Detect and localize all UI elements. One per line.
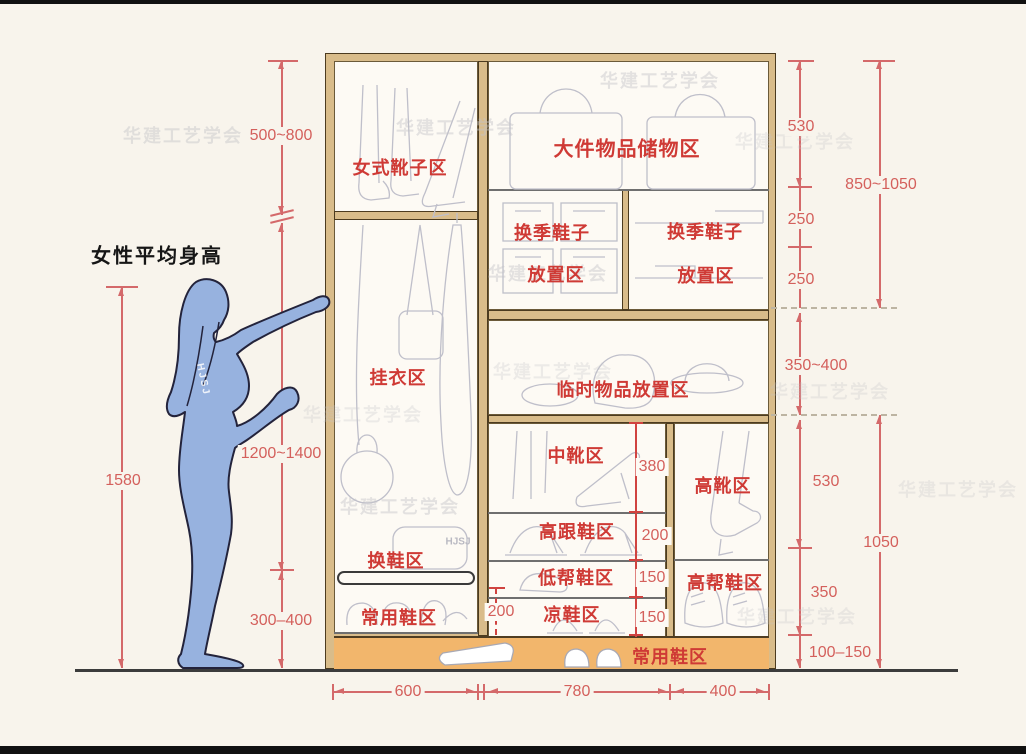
dim-arrow	[756, 688, 764, 694]
dim-label-seasonal-a: 250	[785, 211, 818, 229]
dim-arrow	[876, 416, 882, 424]
dim-label-seasonal-b: 250	[785, 271, 818, 289]
zone-label-women-boots: 女式靴子区	[353, 154, 448, 180]
dim-label-depth: 200	[485, 603, 518, 621]
watermark: 华建工艺学会	[123, 122, 243, 148]
zone-label-mid-boots: 中靴区	[548, 442, 605, 468]
dim-arrow	[676, 688, 684, 694]
dim-arrow	[278, 224, 284, 232]
dim-tick	[483, 684, 485, 700]
zone-label-shoe-change: 换鞋区	[368, 547, 425, 573]
figure-body	[167, 279, 330, 668]
zone-label-sandals: 凉鞋区	[544, 601, 601, 627]
dim-arrow	[796, 406, 802, 414]
dim-arrow	[876, 659, 882, 667]
dim-arrow	[796, 421, 802, 429]
dim-arrow	[796, 659, 802, 667]
watermark: 华建工艺学会	[770, 378, 890, 404]
watermark: 华建工艺学会	[340, 493, 460, 519]
dim-tick-red	[629, 422, 643, 424]
dim-tick	[477, 684, 479, 700]
dim-label-temp-zone: 350~400	[782, 357, 851, 375]
dim-tick	[332, 684, 334, 700]
dim-arrow	[490, 688, 498, 694]
dim-arrow	[876, 299, 882, 307]
bottom-border	[0, 746, 1026, 754]
dim-label-hightop-col: 350	[808, 584, 841, 602]
cushion-brand-text: HJSJ	[445, 537, 470, 548]
zone-label-temporary: 临时物品放置区	[557, 376, 690, 402]
dim-arrow	[658, 688, 666, 694]
dim-label-boots-zone: 500~800	[247, 127, 316, 145]
base-strip-shoes-sketch	[439, 643, 621, 667]
dim-arrow	[796, 62, 802, 70]
dim-label-lower-total: 1050	[860, 534, 902, 552]
dim-label-change-zone: 300–400	[247, 612, 315, 630]
zone-label-high-boots: 高靴区	[695, 472, 752, 498]
dim-arrow	[278, 61, 284, 69]
dim-arrow	[278, 206, 284, 214]
zone-label-common-left: 常用鞋区	[361, 604, 437, 630]
zone-label-hanging: 挂衣区	[370, 364, 427, 390]
dim-label-base: 100–150	[806, 644, 874, 662]
dim-label-upper-total: 850~1050	[842, 176, 920, 194]
zone-label-seasonal-left-2: 放置区	[528, 261, 585, 287]
dim-tick	[669, 684, 671, 700]
zone-label-high-heels: 高跟鞋区	[539, 518, 615, 544]
dim-tick-red	[629, 559, 643, 561]
zone-label-low-shoes: 低帮鞋区	[538, 564, 614, 590]
dim-arrow	[118, 288, 124, 296]
top-border	[0, 0, 1026, 4]
watermark: 华建工艺学会	[600, 67, 720, 93]
dim-label-width-middle: 780	[561, 683, 594, 701]
dim-label-storage: 530	[785, 118, 818, 136]
zone-label-seasonal-right-1: 换季鞋子	[667, 218, 743, 244]
watermark: 华建工艺学会	[396, 114, 516, 140]
hanging-clothes-sketch	[341, 213, 471, 503]
dim-arrow	[466, 688, 474, 694]
watermark: 华建工艺学会	[898, 476, 1018, 502]
zone-label-common-bottom: 常用鞋区	[632, 643, 708, 669]
dim-tick-red	[629, 634, 643, 636]
dim-arrow	[336, 688, 344, 694]
zone-label-hightop-shoes: 高帮鞋区	[687, 569, 763, 595]
dim-label-hanging-zone: 1200~1400	[238, 445, 325, 463]
dim-label-heel: 200	[639, 527, 672, 545]
dim-arrow	[876, 61, 882, 69]
dim-tick-red	[629, 511, 643, 513]
zone-label-seasonal-right-2: 放置区	[678, 262, 735, 288]
dim-label-boots-col: 530	[810, 473, 843, 491]
dim-line-shoe-rows	[635, 423, 637, 637]
watermark: 华建工艺学会	[737, 603, 857, 629]
women-boots-sketch	[359, 85, 475, 217]
zone-label-large-items: 大件物品储物区	[554, 133, 701, 162]
dim-tick-depth	[489, 587, 505, 589]
dim-label-width-left: 600	[392, 683, 425, 701]
zone-label-seasonal-left-1: 换季鞋子	[514, 219, 590, 245]
diagram-canvas: HJSJ 女式靴子区 大件物品储物区 换季鞋子 放置区 换季鞋子 放置区 挂衣区…	[0, 0, 1026, 754]
dim-arrow	[796, 314, 802, 322]
dim-label-sandal: 150	[636, 609, 669, 627]
dim-arrow	[796, 178, 802, 186]
dim-tick	[768, 684, 770, 700]
watermark: 华建工艺学会	[303, 401, 423, 427]
dim-label-low: 150	[636, 569, 669, 587]
dim-label-stature: 1580	[102, 472, 144, 490]
dim-arrow	[796, 539, 802, 547]
dim-tick-red	[629, 596, 643, 598]
dim-line-boots-col	[799, 420, 801, 548]
dim-arrow	[118, 659, 124, 667]
figure-caption: 女性平均身高	[91, 240, 223, 269]
dim-label-mid-boot: 380	[636, 458, 669, 476]
dim-label-width-right: 400	[707, 683, 740, 701]
